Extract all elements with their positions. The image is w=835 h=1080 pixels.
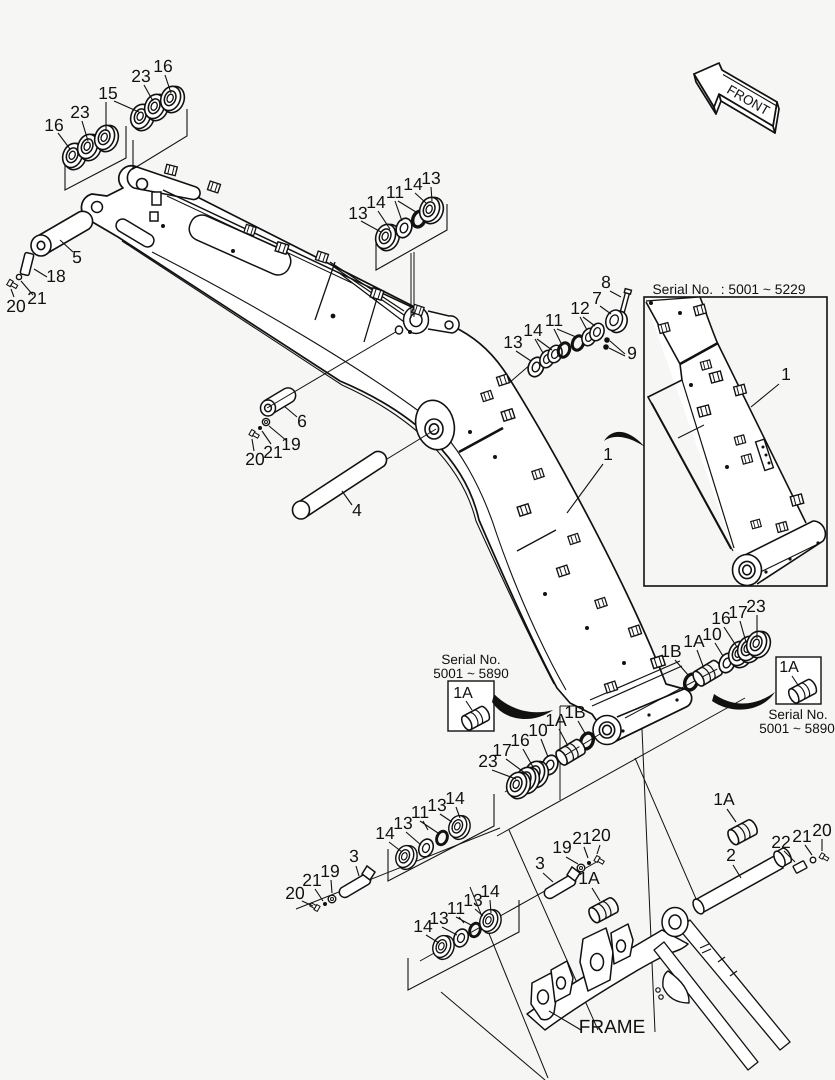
svg-text:3: 3 — [535, 853, 545, 873]
svg-text:20: 20 — [591, 825, 611, 845]
svg-text:21: 21 — [572, 828, 591, 848]
svg-text:1A: 1A — [779, 659, 799, 676]
svg-text:16: 16 — [510, 730, 529, 750]
svg-text:1B: 1B — [660, 641, 681, 661]
svg-text:13: 13 — [427, 795, 446, 815]
svg-text:4: 4 — [352, 500, 362, 520]
svg-text:21: 21 — [263, 442, 282, 462]
svg-text:11: 11 — [545, 310, 563, 330]
svg-text:12: 12 — [570, 298, 589, 318]
svg-text:10: 10 — [528, 720, 548, 740]
svg-text:3: 3 — [349, 846, 359, 866]
svg-text:21: 21 — [792, 826, 811, 846]
svg-text:11: 11 — [386, 182, 404, 202]
svg-text:20: 20 — [6, 296, 26, 316]
svg-text:16: 16 — [44, 115, 63, 135]
svg-text:14: 14 — [366, 192, 386, 212]
svg-text:15: 15 — [98, 83, 117, 103]
svg-text:23: 23 — [746, 596, 765, 616]
svg-text:1B: 1B — [564, 702, 585, 722]
svg-text:Serial No. : 5001 ~ 5229: Serial No. : 5001 ~ 5229 — [652, 282, 805, 297]
svg-text:13: 13 — [421, 168, 440, 188]
svg-text:18: 18 — [46, 266, 65, 286]
svg-text:19: 19 — [320, 861, 339, 881]
svg-text:14: 14 — [523, 320, 543, 340]
svg-text:16: 16 — [153, 56, 172, 76]
svg-text:14: 14 — [375, 823, 395, 843]
svg-text:13: 13 — [348, 203, 367, 223]
svg-text:5: 5 — [72, 247, 82, 267]
svg-text:13: 13 — [503, 332, 522, 352]
svg-text:5001 ~ 5890: 5001 ~ 5890 — [759, 721, 834, 736]
svg-text:21: 21 — [302, 870, 321, 890]
svg-text:1A: 1A — [453, 685, 473, 702]
svg-text:6: 6 — [297, 411, 307, 431]
svg-text:1A: 1A — [545, 710, 567, 730]
svg-text:23: 23 — [70, 102, 89, 122]
svg-text:20: 20 — [812, 820, 832, 840]
svg-text:20: 20 — [245, 449, 265, 469]
svg-text:23: 23 — [131, 66, 150, 86]
svg-text:17: 17 — [728, 602, 747, 622]
svg-text:13: 13 — [429, 908, 448, 928]
svg-text:22: 22 — [771, 832, 790, 852]
svg-text:13: 13 — [393, 813, 412, 833]
svg-text:14: 14 — [480, 881, 500, 901]
svg-text:19: 19 — [281, 434, 300, 454]
svg-text:5001 ~ 5890: 5001 ~ 5890 — [433, 666, 508, 681]
svg-text:2: 2 — [726, 845, 736, 865]
svg-text:8: 8 — [601, 272, 611, 292]
svg-text:Serial No.: Serial No. — [768, 707, 827, 722]
svg-text:1A: 1A — [713, 789, 735, 809]
svg-text:14: 14 — [403, 174, 423, 194]
svg-text:FRAME: FRAME — [579, 1017, 646, 1038]
svg-text:1: 1 — [781, 364, 791, 384]
svg-text:23: 23 — [478, 751, 497, 771]
svg-text:20: 20 — [285, 883, 305, 903]
svg-text:9: 9 — [627, 343, 637, 363]
svg-text:19: 19 — [552, 837, 571, 857]
svg-text:1A: 1A — [578, 868, 600, 888]
svg-text:Serial No.: Serial No. — [441, 652, 500, 667]
svg-text:1: 1 — [603, 444, 613, 464]
svg-text:14: 14 — [445, 788, 465, 808]
